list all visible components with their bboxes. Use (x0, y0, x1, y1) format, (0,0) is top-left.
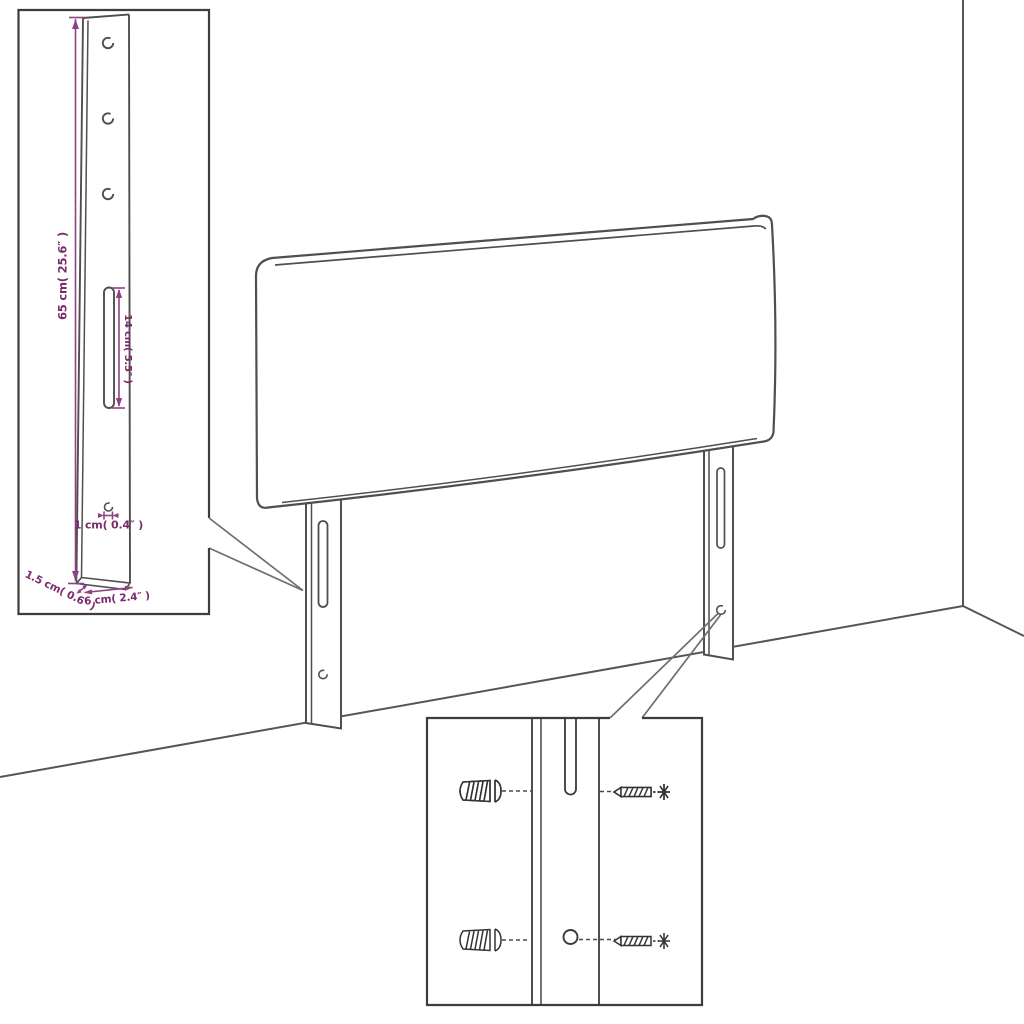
bracket-right-edge (129, 15, 130, 584)
right-leg (704, 439, 733, 660)
left-leg (306, 492, 341, 729)
headboard-panel (256, 216, 775, 508)
line-art (0, 0, 1024, 1024)
hole-dimension-label: 1 cm( 0.4″ ) (74, 519, 143, 530)
height-dimension-label: 65 cm( 25.6″ ) (57, 232, 69, 320)
floor-edge-right (963, 606, 1024, 636)
detail-callout-left (209, 518, 303, 591)
diagram-canvas: 65 cm( 25.6″ ) 14 cm( 5.5″ ) 1 cm( 0.4″ … (0, 0, 1024, 1024)
slot-dimension-label: 14 cm( 5.5″ ) (122, 314, 132, 383)
callout-line (642, 615, 721, 718)
detail-inset-fasteners (427, 718, 702, 1005)
